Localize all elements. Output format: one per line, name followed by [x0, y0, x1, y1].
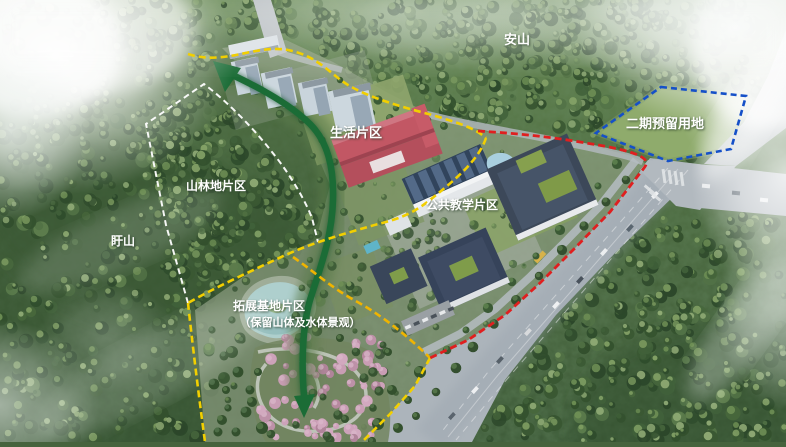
- svg-text:二期预留用地: 二期预留用地: [626, 116, 704, 131]
- svg-text:盱山: 盱山: [111, 233, 135, 248]
- svg-text:公共教学片区: 公共教学片区: [426, 197, 498, 212]
- svg-text:山林地片区: 山林地片区: [186, 178, 246, 193]
- svg-text:拓展基地片区: 拓展基地片区: [233, 298, 305, 313]
- svg-text:安山: 安山: [504, 32, 530, 47]
- svg-text:（保留山体及水体景观）: （保留山体及水体景观）: [240, 315, 361, 329]
- svg-text:生活片区: 生活片区: [330, 125, 382, 140]
